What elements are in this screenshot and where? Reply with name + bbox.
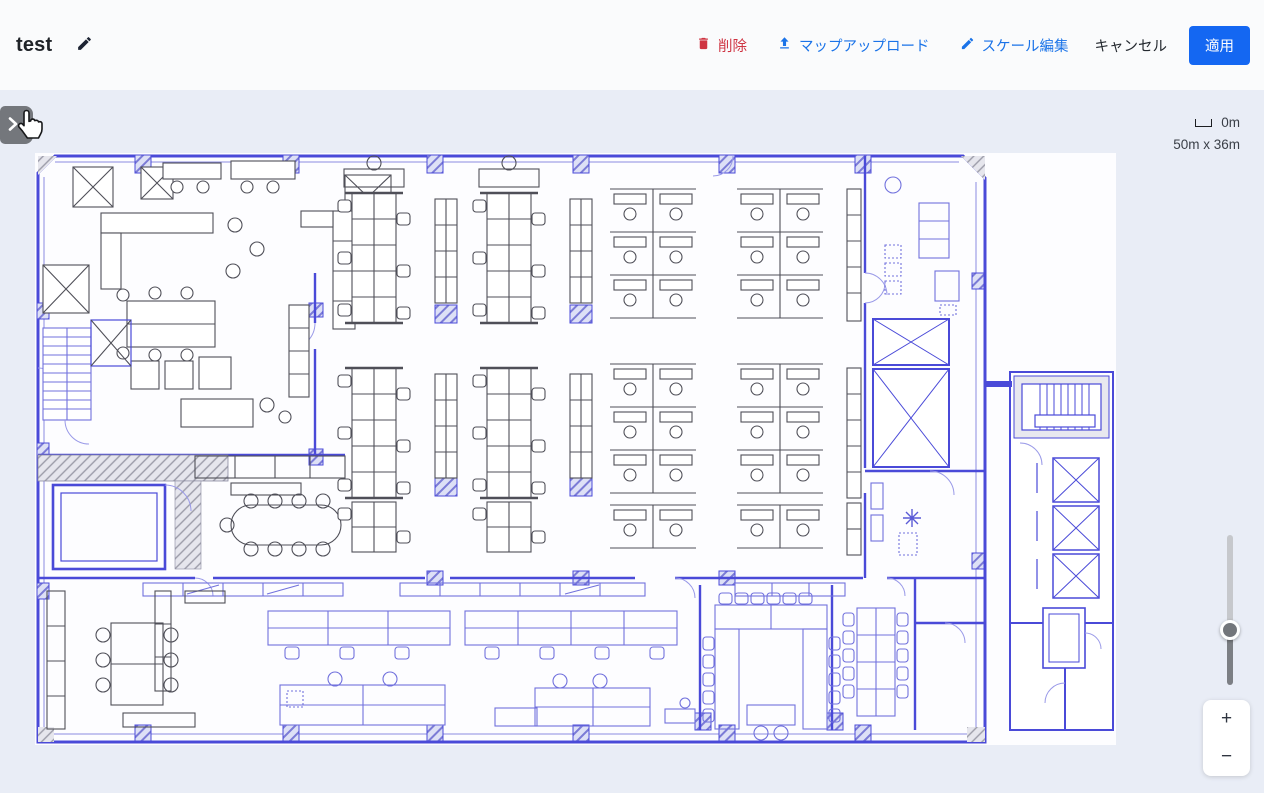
map-viewport[interactable]: 0m 50m x 36m + − (0, 90, 1264, 793)
upload-icon (777, 36, 792, 55)
ruler-icon (1195, 119, 1212, 127)
zoom-slider[interactable] (1226, 535, 1234, 685)
zoom-slider-thumb[interactable] (1220, 620, 1240, 640)
apply-label: 適用 (1205, 39, 1234, 55)
header-actions: 削除 マップアップロード スケール編集 キャンセル 適用 (666, 26, 1250, 65)
map-scale-indicator: 0m 50m x 36m (1173, 112, 1240, 157)
apply-button[interactable]: 適用 (1189, 26, 1250, 65)
scale-value: 0m (1221, 112, 1240, 134)
zoom-in-button[interactable]: + (1203, 700, 1250, 738)
zoom-slider-track-upper[interactable] (1227, 535, 1233, 632)
trash-icon (696, 36, 711, 55)
zoom-out-button[interactable]: − (1203, 738, 1250, 776)
cancel-label: キャンセル (1095, 35, 1168, 56)
scale-edit-button[interactable]: スケール編集 (960, 35, 1069, 56)
floor-plan-canvas[interactable] (35, 153, 1116, 745)
scale-edit-label: スケール編集 (982, 35, 1069, 56)
delete-button[interactable]: 削除 (696, 35, 747, 56)
zoom-buttons-panel: + − (1203, 700, 1250, 776)
upload-label: マップアップロード (799, 35, 930, 56)
floor-plan-svg (35, 153, 1116, 745)
map-dimensions: 50m x 36m (1173, 134, 1240, 156)
cancel-button[interactable]: キャンセル (1095, 35, 1168, 56)
edit-title-button[interactable] (76, 35, 93, 55)
pencil-icon (960, 36, 975, 55)
chevron-right-icon (7, 117, 19, 134)
pencil-icon (76, 35, 93, 55)
map-upload-button[interactable]: マップアップロード (777, 35, 930, 56)
delete-label: 削除 (718, 35, 747, 56)
sidebar-expand-button[interactable] (0, 106, 33, 144)
title-group: test (14, 34, 93, 57)
header: test 削除 マップアップロード スケール編集 キャンセル (0, 0, 1264, 90)
page-title: test (16, 34, 52, 57)
